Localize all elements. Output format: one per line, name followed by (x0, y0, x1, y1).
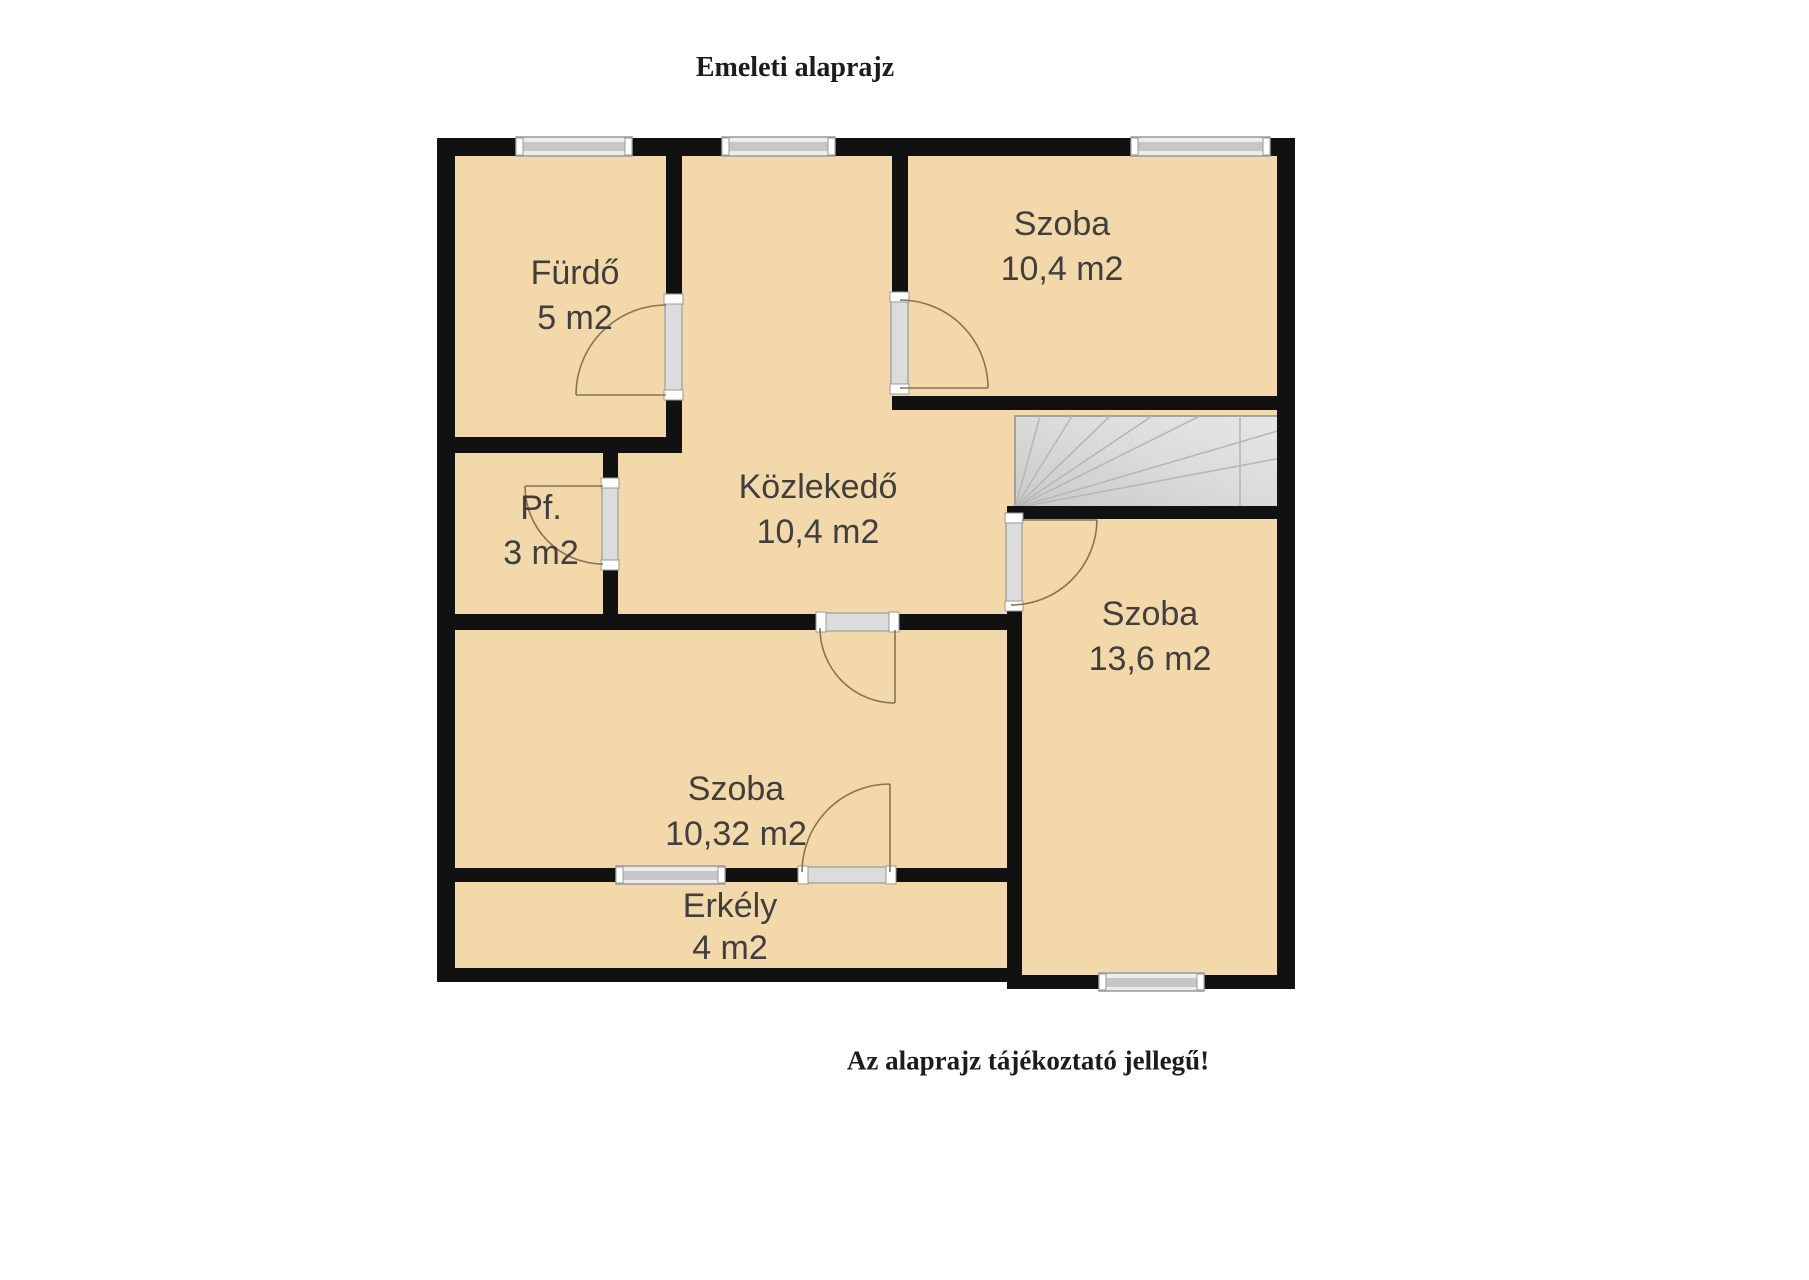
room-area: 10,4 m2 (739, 510, 898, 555)
room-label-szoba-jobb: Szoba 13,6 m2 (1089, 592, 1212, 682)
stairs (1015, 416, 1281, 508)
room-area: 3 m2 (503, 531, 579, 576)
room-label-szoba-also: Szoba 10,32 m2 (665, 767, 807, 857)
room-label-erkely: Erkély 4 m2 (683, 885, 777, 969)
room-name: Szoba (1089, 592, 1212, 637)
room-area: 13,6 m2 (1089, 637, 1212, 682)
window-icon (1131, 137, 1270, 156)
window-icon (616, 866, 725, 884)
room-label-pf: Pf. 3 m2 (503, 486, 579, 576)
room-name: Fürdő (531, 251, 620, 296)
page-title: Emeleti alaprajz (696, 52, 894, 84)
window-icon (722, 137, 835, 156)
room-name: Szoba (1001, 202, 1124, 247)
disclaimer-note: Az alaprajz tájékoztató jellegű! (847, 1046, 1209, 1077)
room-name: Közlekedő (739, 465, 898, 510)
room-area: 10,32 m2 (665, 812, 807, 857)
room-area: 10,4 m2 (1001, 247, 1124, 292)
room-name: Pf. (503, 486, 579, 531)
room-label-kozlekedo: Közlekedő 10,4 m2 (739, 465, 898, 555)
room-label-szoba-felso: Szoba 10,4 m2 (1001, 202, 1124, 292)
window-icon (516, 137, 632, 156)
room-area: 4 m2 (683, 927, 777, 969)
floor-plan-drawing (0, 0, 1809, 1280)
room-name: Erkély (683, 885, 777, 927)
window-icon (1099, 973, 1204, 991)
floor-plan-page: Emeleti alaprajz Az alaprajz tájékoztató… (0, 0, 1809, 1280)
room-label-furdo: Fürdő 5 m2 (531, 251, 620, 341)
room-area: 5 m2 (531, 296, 620, 341)
room-name: Szoba (665, 767, 807, 812)
